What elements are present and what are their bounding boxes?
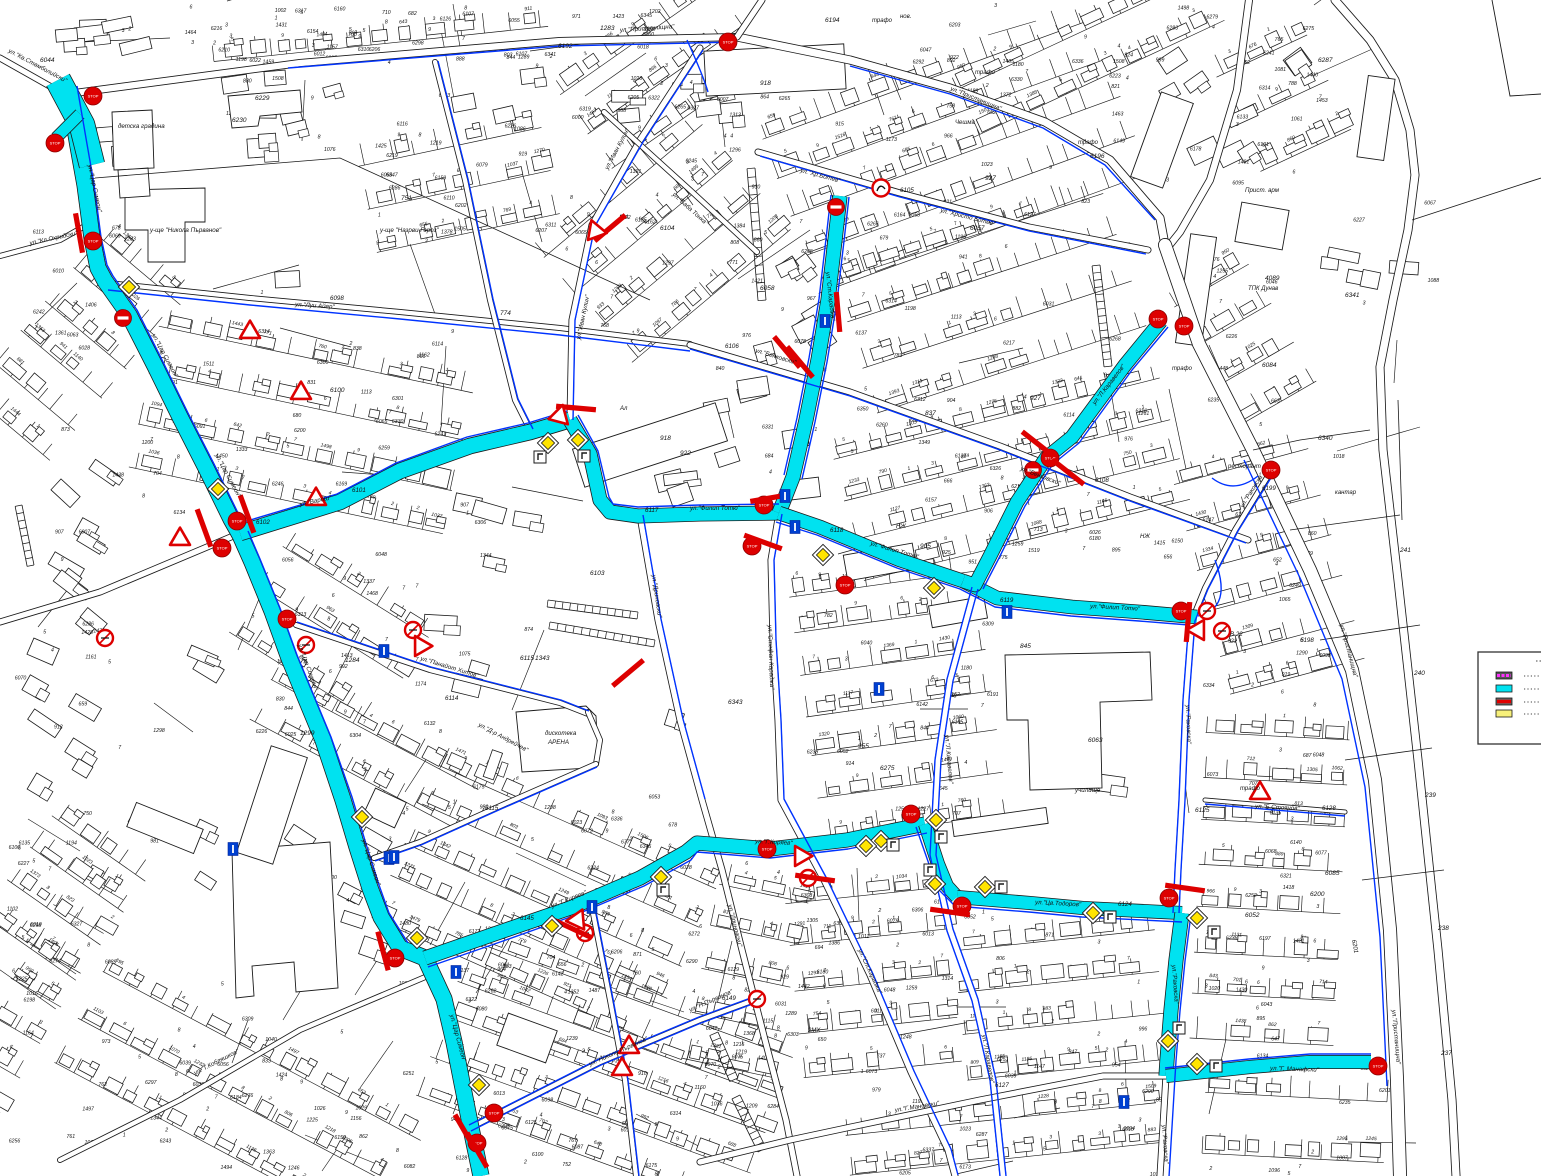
svg-text:6065: 6065 xyxy=(575,230,587,236)
svg-text:6241: 6241 xyxy=(435,431,447,437)
svg-text:871: 871 xyxy=(1045,933,1054,939)
svg-text:3: 3 xyxy=(502,1117,505,1123)
svg-text:STOP: STOP xyxy=(906,812,917,817)
svg-text:STOP: STOP xyxy=(1153,317,1164,322)
svg-text:6077: 6077 xyxy=(1315,850,1328,856)
svg-text:1007: 1007 xyxy=(1336,1155,1349,1161)
svg-text:921: 921 xyxy=(1228,638,1237,644)
svg-text:6235: 6235 xyxy=(1339,1100,1351,1106)
svg-text:6114: 6114 xyxy=(1063,412,1074,418)
svg-text:9: 9 xyxy=(781,307,784,313)
svg-text:6191: 6191 xyxy=(987,692,999,698)
svg-text:1062: 1062 xyxy=(1331,765,1343,772)
svg-text:6018: 6018 xyxy=(637,44,649,50)
svg-text:915: 915 xyxy=(835,122,844,128)
svg-text:6164: 6164 xyxy=(894,212,906,218)
svg-text:8: 8 xyxy=(318,134,321,140)
svg-text:1494: 1494 xyxy=(220,1165,232,1171)
svg-text:6073: 6073 xyxy=(1207,772,1219,778)
svg-text:833: 833 xyxy=(262,1058,271,1064)
svg-text:6031: 6031 xyxy=(1043,301,1055,307)
svg-text:1157: 1157 xyxy=(327,45,339,51)
svg-text:1011: 1011 xyxy=(858,934,869,940)
svg-text:892: 892 xyxy=(947,58,956,64)
svg-text:1228: 1228 xyxy=(1038,1093,1050,1100)
svg-text:1026: 1026 xyxy=(314,1106,326,1112)
svg-text:992: 992 xyxy=(339,664,348,670)
svg-text:1519: 1519 xyxy=(1028,548,1040,554)
svg-text:6007: 6007 xyxy=(717,97,730,103)
svg-text:1: 1 xyxy=(275,15,278,21)
svg-text:6125: 6125 xyxy=(525,1120,537,1126)
svg-text:3: 3 xyxy=(691,176,694,182)
svg-text:6142: 6142 xyxy=(552,972,564,978)
svg-text:6216: 6216 xyxy=(211,26,223,32)
svg-text:6048: 6048 xyxy=(1313,752,1325,758)
svg-text:6: 6 xyxy=(931,675,934,681)
svg-text:9: 9 xyxy=(345,1110,348,1116)
svg-text:5: 5 xyxy=(1259,422,1262,428)
svg-text:6310: 6310 xyxy=(358,47,370,53)
svg-text:6063: 6063 xyxy=(67,333,79,339)
svg-text:883: 883 xyxy=(1147,1127,1156,1134)
svg-text:6043: 6043 xyxy=(1261,1002,1273,1008)
svg-text:6230: 6230 xyxy=(232,117,247,124)
svg-text:964: 964 xyxy=(497,967,506,973)
svg-text:767: 767 xyxy=(568,1138,578,1144)
svg-text:6: 6 xyxy=(1245,979,1248,985)
svg-text:6114: 6114 xyxy=(432,342,443,348)
svg-text:966: 966 xyxy=(1206,888,1215,894)
svg-text:771: 771 xyxy=(729,260,738,266)
svg-text:6025: 6025 xyxy=(285,732,297,738)
svg-text:6039: 6039 xyxy=(1005,1073,1017,1079)
svg-text:6134: 6134 xyxy=(174,510,186,516)
svg-text:6069: 6069 xyxy=(109,233,121,239)
svg-text:924: 924 xyxy=(1124,53,1133,59)
svg-text:6154: 6154 xyxy=(307,29,319,35)
svg-text:1026: 1026 xyxy=(631,76,643,82)
svg-text:954: 954 xyxy=(1112,1062,1121,1068)
svg-text:3: 3 xyxy=(846,250,849,256)
svg-text:6199: 6199 xyxy=(1262,485,1276,492)
svg-text:844: 844 xyxy=(284,706,293,712)
svg-text:6107: 6107 xyxy=(462,12,475,18)
svg-text:1233: 1233 xyxy=(124,237,136,243)
svg-text:6317: 6317 xyxy=(295,8,308,14)
svg-text:782: 782 xyxy=(824,613,833,619)
svg-text:6286: 6286 xyxy=(389,186,401,192)
svg-text:973: 973 xyxy=(102,1039,111,1045)
svg-text:2: 2 xyxy=(523,1160,527,1166)
svg-text:6127: 6127 xyxy=(995,1082,1009,1089)
svg-text:955: 955 xyxy=(858,743,869,750)
svg-text:6089: 6089 xyxy=(105,959,117,965)
svg-text:710: 710 xyxy=(382,10,391,16)
svg-text:6251: 6251 xyxy=(403,1071,415,1077)
svg-text:6124: 6124 xyxy=(1118,901,1132,908)
svg-text:5: 5 xyxy=(1222,843,1225,849)
svg-text:6345: 6345 xyxy=(640,844,652,850)
svg-text:4: 4 xyxy=(1275,562,1278,568)
svg-text:6115: 6115 xyxy=(485,805,499,812)
svg-text:2: 2 xyxy=(1096,1031,1100,1037)
svg-text:6309: 6309 xyxy=(242,1016,254,1022)
svg-text:860: 860 xyxy=(1308,531,1317,537)
svg-text:4089: 4089 xyxy=(1265,275,1280,282)
svg-text:9: 9 xyxy=(805,1045,808,1051)
svg-text:6175: 6175 xyxy=(646,1163,658,1169)
svg-text:кантар: кантар xyxy=(1335,490,1357,496)
svg-text:2: 2 xyxy=(349,341,353,347)
svg-text:8: 8 xyxy=(732,976,735,982)
svg-text:6241: 6241 xyxy=(1263,51,1275,57)
svg-text:6: 6 xyxy=(1005,244,1008,250)
svg-text:2: 2 xyxy=(1026,970,1030,976)
svg-text:9: 9 xyxy=(451,329,454,335)
svg-text:8: 8 xyxy=(641,928,644,934)
svg-text:6042: 6042 xyxy=(706,1026,718,1032)
svg-text:8: 8 xyxy=(385,19,388,25)
svg-text:821: 821 xyxy=(1111,84,1120,90)
svg-text:1352: 1352 xyxy=(568,989,580,995)
svg-text:трафо: трафо xyxy=(1240,786,1261,792)
svg-text:1283: 1283 xyxy=(600,25,615,32)
svg-text:1: 1 xyxy=(814,427,817,433)
svg-text:6210: 6210 xyxy=(218,48,230,54)
svg-text:6198: 6198 xyxy=(1300,637,1314,644)
svg-text:919: 919 xyxy=(518,152,527,158)
svg-text:ул."Филип Тотю": ул."Филип Тотю" xyxy=(689,505,741,512)
svg-text:6007: 6007 xyxy=(79,530,92,536)
svg-text:1423: 1423 xyxy=(613,14,625,20)
svg-text:6238: 6238 xyxy=(807,749,819,755)
svg-text:8: 8 xyxy=(439,729,442,735)
svg-text:5: 5 xyxy=(705,1051,708,1057)
svg-text:3: 3 xyxy=(1065,528,1068,534)
svg-text:STOP: STOP xyxy=(762,847,773,852)
svg-text:967: 967 xyxy=(807,296,817,302)
svg-text:6129: 6129 xyxy=(727,967,739,973)
svg-text:3: 3 xyxy=(665,63,668,69)
svg-text:1: 1 xyxy=(378,213,381,219)
svg-text:6063: 6063 xyxy=(1088,737,1103,744)
svg-text:6262: 6262 xyxy=(485,989,497,995)
svg-text:1406: 1406 xyxy=(85,303,97,309)
svg-text:3: 3 xyxy=(122,28,125,34)
svg-text:6022: 6022 xyxy=(249,58,261,64)
svg-text:6180: 6180 xyxy=(817,969,829,975)
svg-text:694: 694 xyxy=(815,945,824,951)
svg-text:6157: 6157 xyxy=(925,497,938,503)
svg-text:862: 862 xyxy=(1268,1022,1277,1028)
svg-text:6105: 6105 xyxy=(900,187,914,194)
svg-text:9: 9 xyxy=(428,27,431,33)
svg-text:1337: 1337 xyxy=(363,579,376,585)
svg-text:6: 6 xyxy=(332,593,335,599)
svg-text:4: 4 xyxy=(564,989,567,995)
svg-text:3: 3 xyxy=(1291,816,1294,822)
svg-text:8: 8 xyxy=(607,905,610,911)
svg-text:6: 6 xyxy=(186,1069,189,1075)
svg-text:6350: 6350 xyxy=(857,406,869,412)
svg-text:808: 808 xyxy=(730,240,739,246)
svg-text:752: 752 xyxy=(562,1162,571,1168)
svg-text:5: 5 xyxy=(406,806,409,812)
svg-text:1061: 1061 xyxy=(1291,117,1303,123)
svg-text:6286: 6286 xyxy=(82,622,94,628)
svg-text:6217: 6217 xyxy=(1003,340,1016,346)
svg-text:2: 2 xyxy=(205,1106,209,1112)
svg-text:6198: 6198 xyxy=(24,998,36,1004)
svg-text:751: 751 xyxy=(401,195,412,202)
svg-text:1075: 1075 xyxy=(459,651,471,657)
svg-text:6048: 6048 xyxy=(375,552,387,558)
svg-text:918: 918 xyxy=(760,80,771,87)
svg-text:9: 9 xyxy=(638,126,641,132)
svg-text:6150: 6150 xyxy=(334,1135,346,1141)
svg-text:2: 2 xyxy=(985,83,989,89)
svg-text:5: 5 xyxy=(851,449,854,455)
svg-text:682: 682 xyxy=(408,11,417,17)
svg-text:4: 4 xyxy=(1126,76,1129,82)
svg-text:ТПК Дунав: ТПК Дунав xyxy=(1248,286,1278,292)
svg-text:9: 9 xyxy=(1049,165,1052,171)
svg-text:6013: 6013 xyxy=(493,1091,505,1097)
svg-text:6206: 6206 xyxy=(369,47,381,53)
svg-text:НЖ: НЖ xyxy=(1140,534,1150,540)
svg-text:STOP: STOP xyxy=(88,239,99,244)
svg-text:1113: 1113 xyxy=(361,390,372,396)
svg-text:6306: 6306 xyxy=(475,520,487,526)
svg-text:3: 3 xyxy=(686,160,689,166)
svg-text:3: 3 xyxy=(1205,983,1208,989)
svg-text:1: 1 xyxy=(453,799,456,805)
svg-text:6087: 6087 xyxy=(572,1145,585,1151)
svg-text:6284: 6284 xyxy=(767,1104,779,1110)
svg-text:6102: 6102 xyxy=(256,519,270,526)
svg-text:907: 907 xyxy=(460,502,470,508)
svg-text:996: 996 xyxy=(1139,1027,1148,1033)
svg-text:9: 9 xyxy=(300,1080,303,1086)
svg-text:5: 5 xyxy=(652,947,655,953)
svg-text:6206: 6206 xyxy=(611,949,623,955)
svg-text:6137: 6137 xyxy=(855,331,868,337)
svg-text:STOP: STOP xyxy=(282,617,293,622)
svg-text:6125: 6125 xyxy=(1195,807,1210,814)
svg-text:6070: 6070 xyxy=(15,676,27,682)
svg-text:1296: 1296 xyxy=(729,147,741,153)
svg-text:6301: 6301 xyxy=(392,396,404,402)
svg-text:979: 979 xyxy=(872,1088,881,1094)
svg-text:6058: 6058 xyxy=(908,213,920,219)
svg-text:6098: 6098 xyxy=(330,295,344,302)
svg-text:9: 9 xyxy=(343,576,346,582)
svg-text:6057: 6057 xyxy=(970,225,985,232)
svg-text:3: 3 xyxy=(1279,747,1282,753)
svg-text:6023: 6023 xyxy=(571,820,583,826)
svg-text:6058: 6058 xyxy=(760,285,775,292)
svg-text:5: 5 xyxy=(363,28,366,34)
svg-text:6227: 6227 xyxy=(18,861,31,867)
svg-text:6068: 6068 xyxy=(1265,849,1277,855)
svg-text:2: 2 xyxy=(1250,682,1254,688)
svg-text:6337: 6337 xyxy=(922,1148,935,1154)
svg-text:838: 838 xyxy=(353,346,362,352)
svg-text:8: 8 xyxy=(396,1148,399,1154)
svg-text:6196: 6196 xyxy=(1090,153,1105,160)
svg-text:6052: 6052 xyxy=(1245,912,1260,919)
svg-text:976: 976 xyxy=(742,333,751,339)
svg-text:5: 5 xyxy=(286,443,289,449)
svg-text:6: 6 xyxy=(654,57,657,63)
svg-text:844: 844 xyxy=(507,55,516,61)
svg-text:768: 768 xyxy=(600,323,609,329)
svg-text:3: 3 xyxy=(845,656,848,662)
svg-text:STOP: STOP xyxy=(1373,1064,1384,1069)
svg-text:1314: 1314 xyxy=(942,976,954,982)
svg-text:STOP: STOP xyxy=(747,544,758,549)
svg-text:8: 8 xyxy=(774,1034,777,1040)
svg-text:9: 9 xyxy=(1262,966,1265,972)
svg-text:6208: 6208 xyxy=(498,1123,510,1129)
svg-text:6126: 6126 xyxy=(440,17,452,23)
svg-text:6117: 6117 xyxy=(645,507,659,514)
svg-text:2: 2 xyxy=(1208,1166,1212,1172)
svg-text:1431: 1431 xyxy=(276,22,288,28)
svg-text:6103: 6103 xyxy=(590,570,605,577)
svg-text:1034: 1034 xyxy=(896,873,908,880)
svg-text:8: 8 xyxy=(1099,1099,1102,1105)
svg-text:6200: 6200 xyxy=(294,428,306,434)
svg-text:760: 760 xyxy=(632,970,641,976)
svg-text:5: 5 xyxy=(1287,1171,1290,1176)
svg-text:6: 6 xyxy=(823,983,826,989)
svg-text:6311: 6311 xyxy=(545,223,556,229)
svg-text:1259: 1259 xyxy=(906,985,918,991)
svg-text:684: 684 xyxy=(765,453,774,459)
svg-text:3: 3 xyxy=(388,836,391,842)
svg-text:2: 2 xyxy=(581,1049,585,1055)
svg-text:847: 847 xyxy=(1068,1049,1078,1055)
svg-text:6205: 6205 xyxy=(628,95,640,101)
svg-text:912: 912 xyxy=(54,725,63,731)
svg-text:2: 2 xyxy=(717,1065,721,1071)
svg-text:1430: 1430 xyxy=(1236,988,1248,994)
svg-text:1289: 1289 xyxy=(785,1011,797,1017)
svg-text:4: 4 xyxy=(1118,44,1121,50)
svg-text:918: 918 xyxy=(660,435,671,442)
svg-text:6107: 6107 xyxy=(516,51,529,57)
svg-text:1: 1 xyxy=(466,510,469,516)
svg-text:6106: 6106 xyxy=(725,343,739,350)
svg-text:895: 895 xyxy=(1257,1016,1266,1022)
svg-text:754: 754 xyxy=(813,1011,822,1018)
svg-text:6249: 6249 xyxy=(1289,583,1301,589)
svg-text:6128: 6128 xyxy=(1322,805,1336,812)
svg-text:663: 663 xyxy=(1271,399,1280,405)
svg-text:3: 3 xyxy=(994,3,997,9)
svg-text:9: 9 xyxy=(311,95,314,101)
svg-text:9: 9 xyxy=(344,710,347,716)
svg-text:1363: 1363 xyxy=(263,1150,275,1156)
svg-text:788: 788 xyxy=(1288,81,1297,87)
svg-text:951: 951 xyxy=(968,560,977,566)
svg-text:6229: 6229 xyxy=(255,95,270,102)
svg-text:8: 8 xyxy=(1301,846,1304,852)
svg-text:1198: 1198 xyxy=(236,57,247,63)
svg-text:6: 6 xyxy=(1293,170,1296,176)
svg-text:4: 4 xyxy=(1212,24,1215,30)
svg-text:3: 3 xyxy=(225,23,228,29)
svg-text:8: 8 xyxy=(612,809,615,815)
svg-text:927: 927 xyxy=(1030,395,1041,402)
svg-text:5: 5 xyxy=(221,981,224,987)
svg-text:1313: 1313 xyxy=(729,113,741,119)
svg-text:6256: 6256 xyxy=(9,1139,21,1145)
svg-text:864: 864 xyxy=(760,95,769,101)
svg-text:6149: 6149 xyxy=(722,995,736,1002)
svg-text:1508: 1508 xyxy=(272,76,284,82)
svg-text:1161: 1161 xyxy=(85,654,96,660)
svg-text:1002: 1002 xyxy=(275,8,287,14)
svg-text:у-ще "Назрви Героз": у-ще "Назрви Героз" xyxy=(379,227,439,234)
svg-text:1481: 1481 xyxy=(1238,159,1250,165)
svg-text:6073: 6073 xyxy=(581,828,593,834)
svg-text:6224: 6224 xyxy=(587,865,599,871)
svg-text:6119: 6119 xyxy=(1000,597,1014,604)
svg-text:1255: 1255 xyxy=(1216,269,1228,275)
svg-text:6010: 6010 xyxy=(30,922,42,928)
svg-text:9: 9 xyxy=(676,1136,679,1142)
svg-text:4: 4 xyxy=(777,870,780,876)
svg-text:8: 8 xyxy=(725,1041,728,1047)
svg-text:6073: 6073 xyxy=(866,1069,878,1075)
svg-text:3: 3 xyxy=(191,40,194,46)
svg-text:9: 9 xyxy=(535,64,538,70)
svg-text:239: 239 xyxy=(1424,792,1436,799)
svg-text:8: 8 xyxy=(327,617,330,623)
svg-text:6203: 6203 xyxy=(949,22,961,28)
svg-text:919: 919 xyxy=(1282,672,1291,678)
svg-text:6292: 6292 xyxy=(913,60,925,66)
svg-text:8: 8 xyxy=(655,1171,658,1176)
svg-text:8: 8 xyxy=(142,494,145,500)
svg-text:1173: 1173 xyxy=(886,137,897,143)
svg-text:6192: 6192 xyxy=(558,43,573,50)
svg-text:4: 4 xyxy=(692,989,695,995)
svg-text:6175: 6175 xyxy=(473,784,485,790)
svg-text:1290: 1290 xyxy=(1296,650,1308,656)
svg-text:1096: 1096 xyxy=(1268,1168,1280,1174)
svg-text:1463: 1463 xyxy=(1112,111,1124,117)
svg-text:1219: 1219 xyxy=(430,140,442,146)
svg-text:1428: 1428 xyxy=(81,630,93,636)
svg-text:5: 5 xyxy=(108,660,111,666)
svg-text:5: 5 xyxy=(32,859,35,865)
svg-text:9: 9 xyxy=(587,212,590,218)
svg-text:656: 656 xyxy=(1164,555,1173,561)
svg-text:774: 774 xyxy=(500,310,511,317)
svg-text:3: 3 xyxy=(1097,940,1100,946)
svg-text:НЖ: НЖ xyxy=(896,524,906,530)
svg-text:941: 941 xyxy=(959,255,968,261)
svg-text:4: 4 xyxy=(769,470,772,476)
svg-text:1016: 1016 xyxy=(26,991,38,997)
svg-text:ул."Раковска": ул."Раковска" xyxy=(1184,704,1192,745)
svg-text:2: 2 xyxy=(659,81,663,87)
svg-text:888: 888 xyxy=(456,57,465,63)
